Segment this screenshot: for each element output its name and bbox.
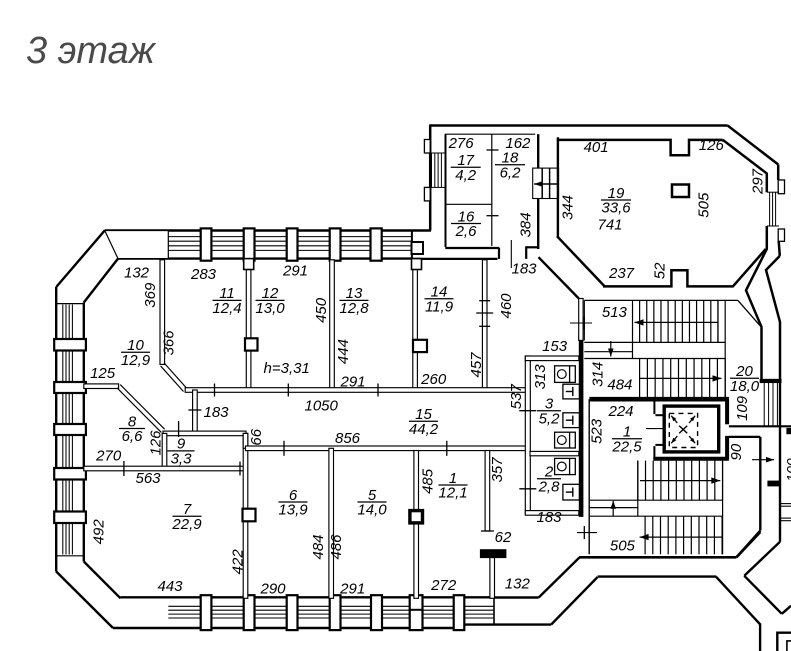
svg-text:537: 537 [508, 384, 525, 410]
svg-text:443: 443 [157, 578, 183, 595]
svg-text:291: 291 [339, 581, 365, 598]
svg-text:523: 523 [589, 418, 606, 444]
svg-text:505: 505 [696, 192, 713, 218]
svg-text:369: 369 [142, 282, 159, 308]
svg-text:162: 162 [505, 135, 531, 152]
svg-text:11,9: 11,9 [425, 298, 454, 315]
svg-text:486: 486 [328, 534, 345, 560]
svg-text:2,8: 2,8 [538, 478, 561, 495]
svg-text:513: 513 [602, 304, 628, 321]
svg-text:6,6: 6,6 [122, 428, 144, 445]
svg-text:290: 290 [259, 581, 286, 598]
svg-text:283: 283 [190, 266, 217, 283]
svg-text:422: 422 [230, 549, 247, 575]
svg-text:12,4: 12,4 [212, 300, 241, 317]
svg-text:90: 90 [728, 443, 745, 460]
svg-text:505: 505 [610, 538, 636, 555]
svg-text:272: 272 [430, 577, 457, 594]
svg-text:460: 460 [498, 293, 515, 319]
svg-text:492: 492 [90, 519, 107, 545]
svg-text:313: 313 [532, 364, 549, 390]
svg-text:291: 291 [282, 263, 308, 280]
svg-text:13,9: 13,9 [278, 502, 308, 519]
svg-text:856: 856 [335, 430, 361, 447]
svg-text:44,2: 44,2 [409, 421, 439, 438]
svg-text:237: 237 [608, 265, 635, 282]
svg-text:484: 484 [310, 534, 327, 559]
svg-text:22,9: 22,9 [171, 516, 202, 533]
svg-text:384: 384 [518, 212, 535, 237]
svg-text:1050: 1050 [305, 397, 339, 414]
svg-text:109: 109 [734, 395, 751, 421]
svg-text:62: 62 [495, 529, 512, 546]
svg-text:100: 100 [784, 458, 791, 482]
svg-text:6,2: 6,2 [500, 164, 522, 181]
svg-text:401: 401 [584, 139, 609, 156]
svg-text:18,0: 18,0 [730, 378, 760, 395]
svg-text:2,6: 2,6 [455, 223, 478, 240]
svg-text:126: 126 [699, 137, 725, 154]
svg-text:33,6: 33,6 [601, 200, 631, 217]
svg-text:153: 153 [542, 338, 568, 355]
svg-text:12,1: 12,1 [438, 485, 467, 502]
svg-text:12,9: 12,9 [121, 352, 151, 369]
svg-text:224: 224 [607, 403, 633, 420]
svg-text:125: 125 [90, 365, 116, 382]
svg-text:52: 52 [652, 262, 669, 279]
svg-text:450: 450 [313, 297, 330, 323]
svg-text:14,0: 14,0 [357, 502, 387, 519]
svg-text:444: 444 [335, 339, 352, 364]
svg-text:457: 457 [468, 352, 485, 378]
svg-text:13,0: 13,0 [255, 300, 285, 317]
svg-text:563: 563 [135, 470, 161, 487]
svg-text:366: 366 [160, 330, 177, 356]
svg-text:66: 66 [248, 428, 265, 445]
svg-text:3,3: 3,3 [171, 451, 193, 468]
svg-text:485: 485 [420, 468, 437, 494]
svg-text:291: 291 [339, 374, 365, 391]
svg-text:314: 314 [590, 362, 607, 387]
svg-text:183: 183 [511, 261, 537, 278]
svg-text:183: 183 [536, 509, 562, 526]
svg-text:357: 357 [489, 457, 506, 483]
svg-text:132: 132 [124, 265, 150, 282]
svg-text:12,8: 12,8 [339, 300, 369, 317]
svg-text:741: 741 [597, 217, 622, 234]
svg-text:4,2: 4,2 [455, 167, 477, 184]
svg-text:183: 183 [203, 404, 229, 421]
svg-text:270: 270 [95, 447, 122, 464]
svg-text:132: 132 [505, 576, 531, 593]
svg-text:484: 484 [607, 377, 632, 394]
svg-text:126: 126 [148, 430, 165, 456]
svg-text:260: 260 [420, 371, 447, 388]
svg-text:297: 297 [749, 168, 766, 195]
svg-text:3 этаж: 3 этаж [26, 30, 157, 72]
svg-text:344: 344 [560, 195, 577, 220]
svg-text:276: 276 [448, 135, 475, 152]
svg-text:5,2: 5,2 [539, 410, 561, 427]
svg-text:22,5: 22,5 [611, 438, 642, 455]
svg-text:h=3,31: h=3,31 [264, 360, 310, 377]
